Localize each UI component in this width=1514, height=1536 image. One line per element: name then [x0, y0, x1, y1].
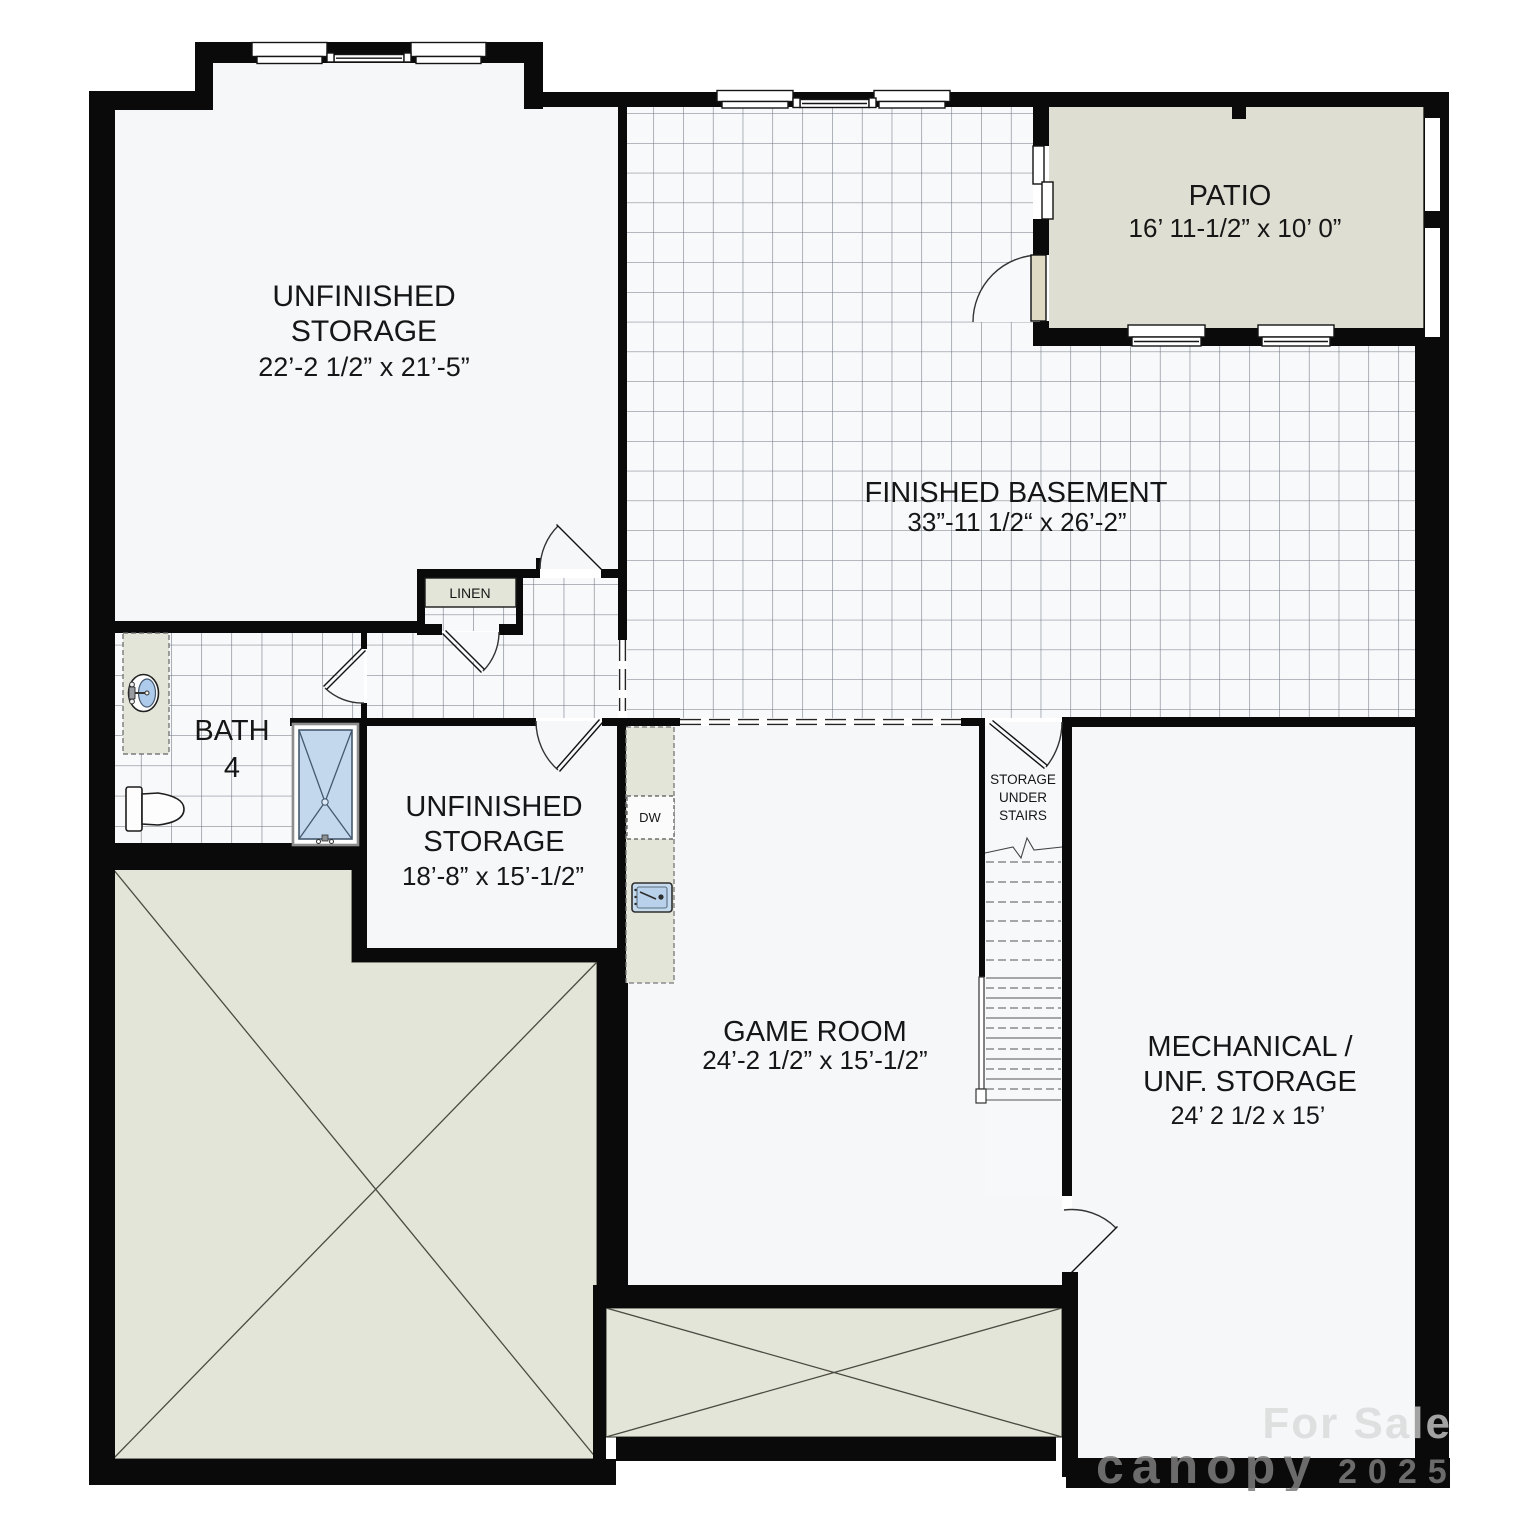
svg-text:STORAGE: STORAGE: [990, 772, 1056, 787]
svg-text:DW: DW: [639, 810, 661, 825]
svg-text:STAIRS: STAIRS: [999, 808, 1047, 823]
svg-text:24’-2 1/2” x 15’-1/2”: 24’-2 1/2” x 15’-1/2”: [702, 1045, 927, 1075]
svg-text:33”-11 1/2“ x 26’-2”: 33”-11 1/2“ x 26’-2”: [907, 507, 1126, 537]
svg-text:UNF. STORAGE: UNF. STORAGE: [1143, 1066, 1357, 1098]
svg-text:22’-2 1/2” x 21’-5”: 22’-2 1/2” x 21’-5”: [258, 352, 470, 382]
svg-text:16’ 11-1/2” x 10’ 0”: 16’ 11-1/2” x 10’ 0”: [1129, 213, 1342, 243]
svg-text:UNFINISHED: UNFINISHED: [405, 791, 582, 823]
svg-text:PATIO: PATIO: [1189, 180, 1272, 212]
svg-text:STORAGE: STORAGE: [291, 315, 437, 348]
svg-text:MECHANICAL /: MECHANICAL /: [1147, 1031, 1353, 1063]
svg-text:UNFINISHED: UNFINISHED: [272, 280, 455, 313]
svg-text:18’-8” x 15’-1/2”: 18’-8” x 15’-1/2”: [402, 861, 584, 891]
svg-text:canopy: canopy: [1096, 1438, 1319, 1494]
svg-text:STORAGE: STORAGE: [423, 826, 564, 858]
svg-text:2025: 2025: [1338, 1453, 1458, 1491]
svg-text:LINEN: LINEN: [449, 585, 490, 601]
svg-text:UNDER: UNDER: [999, 790, 1047, 805]
svg-text:GAME ROOM: GAME ROOM: [723, 1016, 907, 1048]
svg-text:24’ 2 1/2 x 15’: 24’ 2 1/2 x 15’: [1171, 1102, 1326, 1130]
svg-text:4: 4: [224, 752, 240, 784]
svg-text:FINISHED BASEMENT: FINISHED BASEMENT: [865, 477, 1168, 509]
svg-text:BATH: BATH: [194, 715, 269, 747]
